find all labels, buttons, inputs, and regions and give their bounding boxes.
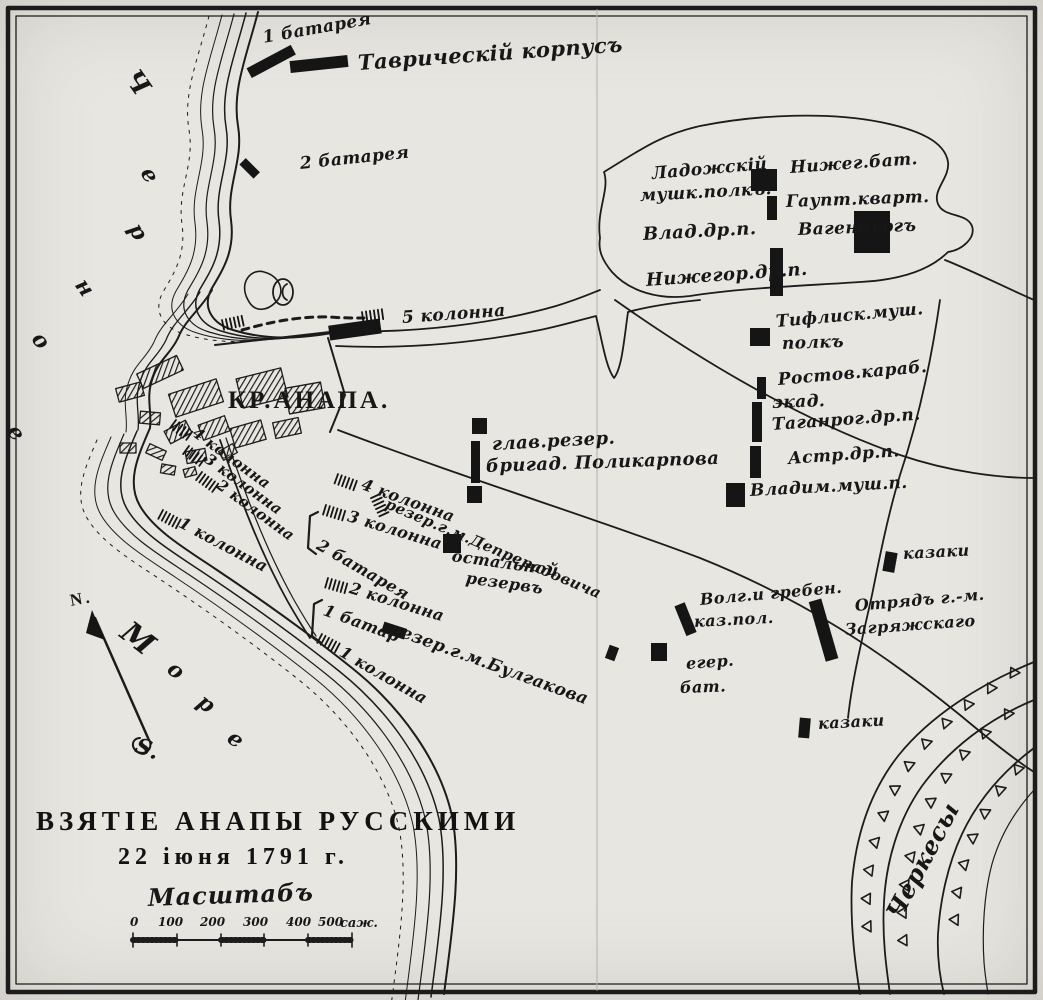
scale-tick-400: 400 bbox=[286, 916, 311, 928]
battery-brackets bbox=[308, 512, 322, 642]
scale-bar bbox=[133, 933, 352, 947]
headquarters-label: Гаупт.кварт. bbox=[786, 189, 930, 211]
cossacks-upper-label: казаки bbox=[903, 543, 970, 562]
scale-tick-100: 100 bbox=[158, 916, 183, 928]
wagenburg-label: Вагенбургъ bbox=[798, 218, 917, 239]
route-circle-symbol bbox=[273, 279, 293, 305]
scale-tick-0: 0 bbox=[130, 916, 138, 928]
scale-unit-label: саж. bbox=[340, 917, 378, 930]
historical-map-anapa-1791: 1 батареяТаврическій корпусъ2 батареяЛад… bbox=[0, 0, 1043, 1000]
fortress-anapa-label: КР.АНАПА. bbox=[228, 388, 390, 413]
scale-tick-300: 300 bbox=[243, 916, 268, 928]
river-banks bbox=[334, 290, 700, 378]
battalion-hash-symbols bbox=[158, 309, 388, 652]
rostov-carabineers-label-2: экад. bbox=[772, 393, 826, 412]
jager-battalion-label-2: бат. bbox=[680, 678, 727, 696]
map-title-line2: 22 іюня 1791 г. bbox=[118, 845, 349, 869]
tiflis-regiment-label-2: полкъ bbox=[782, 334, 845, 353]
volga-cossacks-label-2: каз.пол. bbox=[694, 610, 774, 630]
cossacks-lower-label: казаки bbox=[818, 713, 885, 732]
compass-north-label: N. bbox=[69, 588, 94, 609]
map-title-line1: ВЗЯТІЕ АНАПЫ РУССКИМИ bbox=[36, 808, 520, 835]
jager-battalion-label-1: егер. bbox=[685, 653, 734, 672]
scale-title: Масштабъ bbox=[148, 880, 315, 910]
scale-tick-200: 200 bbox=[200, 916, 225, 928]
